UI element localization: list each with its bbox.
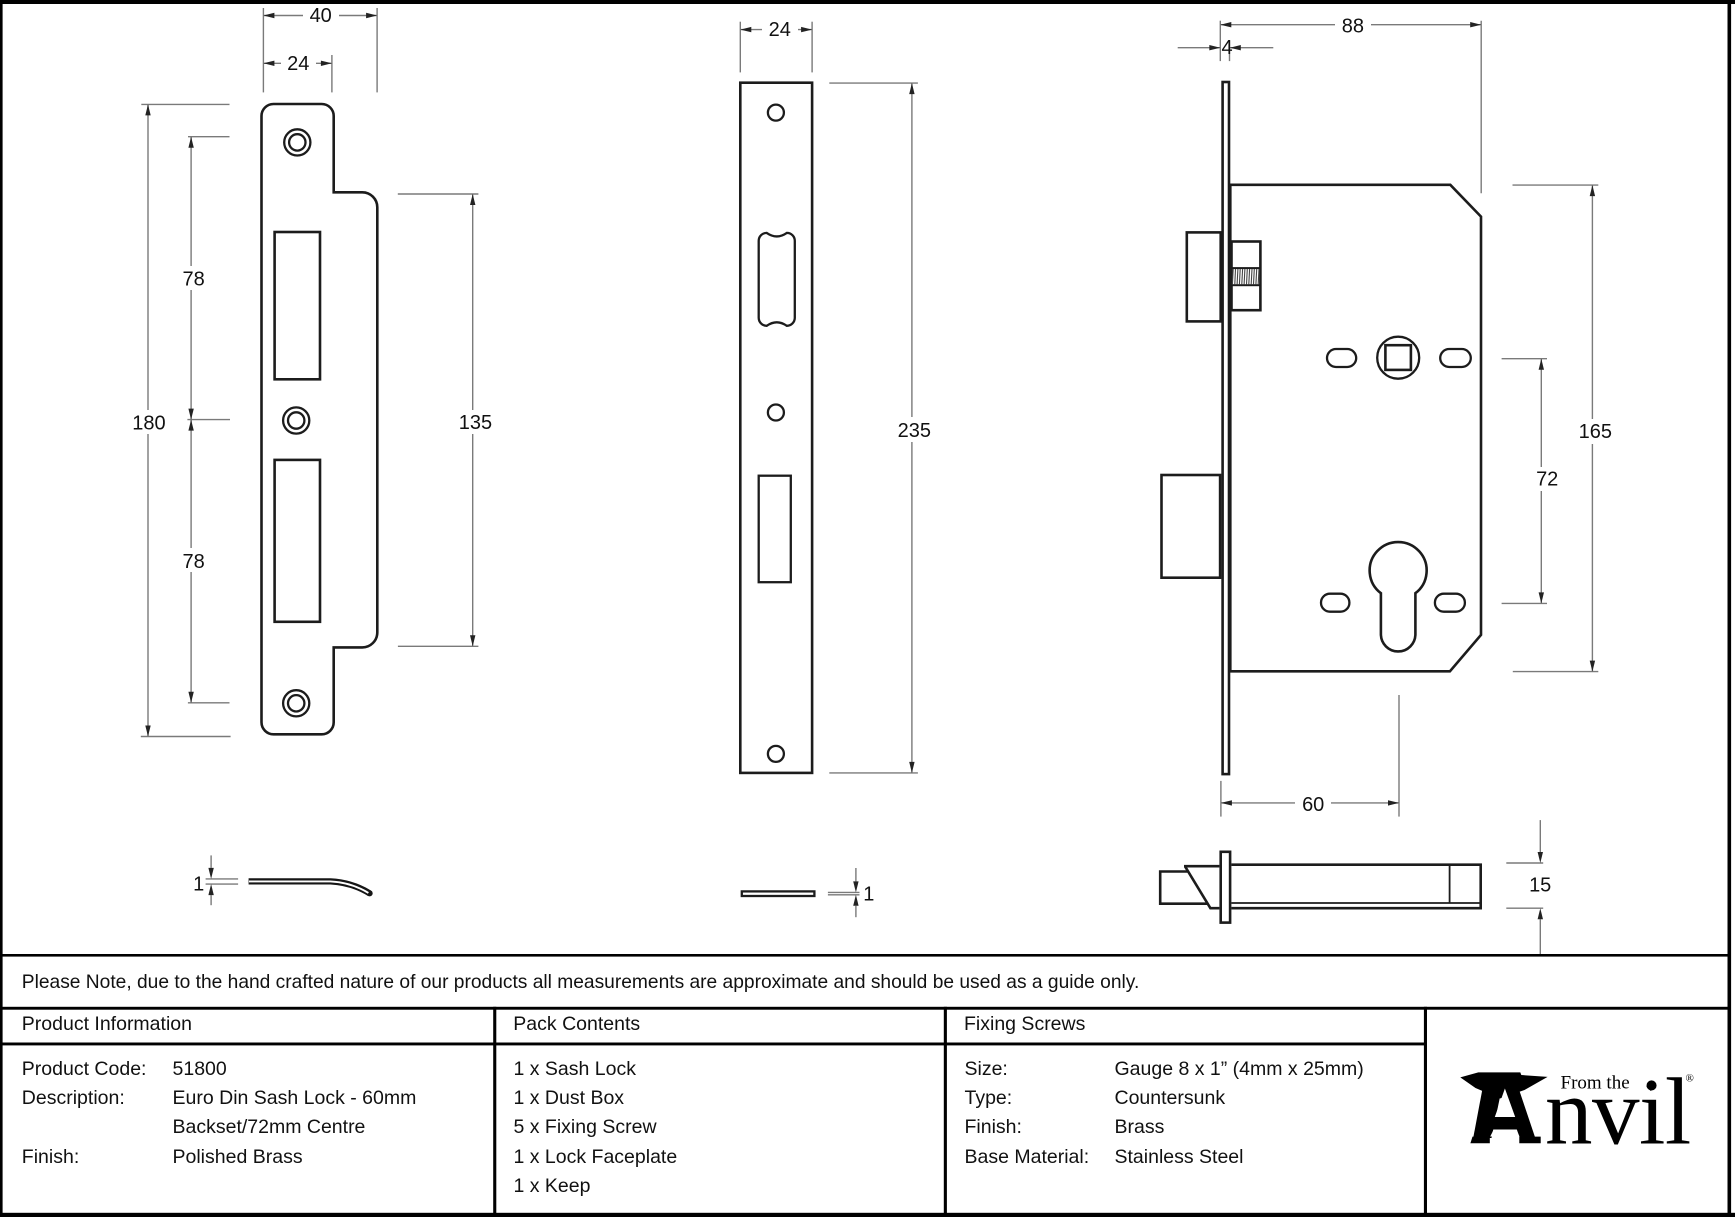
svg-text:40: 40 (310, 5, 332, 27)
svg-text:135: 135 (459, 412, 492, 434)
svg-text:nvil: nvil (1545, 1059, 1691, 1165)
svg-text:72: 72 (1536, 469, 1558, 491)
svg-text:78: 78 (182, 551, 204, 573)
svg-text:60: 60 (1302, 794, 1324, 816)
svg-text:180: 180 (132, 412, 165, 434)
svg-text:78: 78 (182, 269, 204, 291)
svg-text:235: 235 (898, 420, 931, 442)
svg-text:165: 165 (1579, 421, 1612, 443)
svg-text:15: 15 (1529, 875, 1551, 897)
svg-text:4: 4 (1221, 37, 1232, 59)
svg-text:88: 88 (1342, 15, 1364, 37)
svg-text:24: 24 (769, 19, 791, 41)
svg-text:1: 1 (863, 884, 874, 906)
svg-text:®: ® (1686, 1073, 1694, 1085)
svg-text:24: 24 (287, 53, 309, 75)
svg-text:1: 1 (193, 874, 204, 896)
